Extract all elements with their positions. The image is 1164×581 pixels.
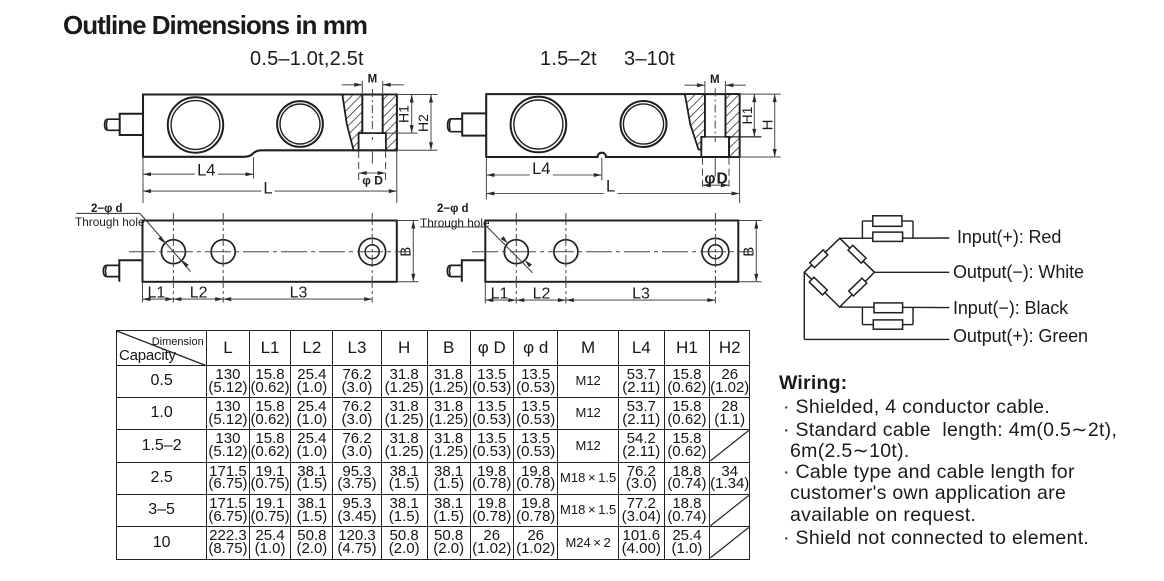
svg-text:L4: L4 (532, 160, 550, 178)
svg-text:B: B (397, 247, 414, 257)
svg-text:L: L (606, 178, 615, 196)
svg-text:M: M (368, 74, 378, 86)
svg-text:H: H (759, 120, 776, 131)
svg-text:H1: H1 (739, 106, 755, 124)
svg-text:B: B (740, 247, 757, 257)
svg-text:L1: L1 (148, 285, 166, 302)
svg-text:L: L (263, 180, 272, 198)
svg-text:L3: L3 (632, 286, 650, 303)
svg-text:L3: L3 (290, 285, 308, 302)
svg-text:φ D: φ D (362, 174, 383, 188)
svg-text:φD: φD (704, 170, 728, 187)
svg-text:H2: H2 (415, 114, 431, 132)
svg-text:M: M (710, 74, 720, 86)
svg-text:L2: L2 (533, 286, 551, 303)
svg-text:L1: L1 (491, 286, 509, 303)
svg-text:L4: L4 (197, 162, 215, 180)
svg-text:H1: H1 (396, 105, 412, 123)
svg-text:L2: L2 (190, 285, 208, 302)
